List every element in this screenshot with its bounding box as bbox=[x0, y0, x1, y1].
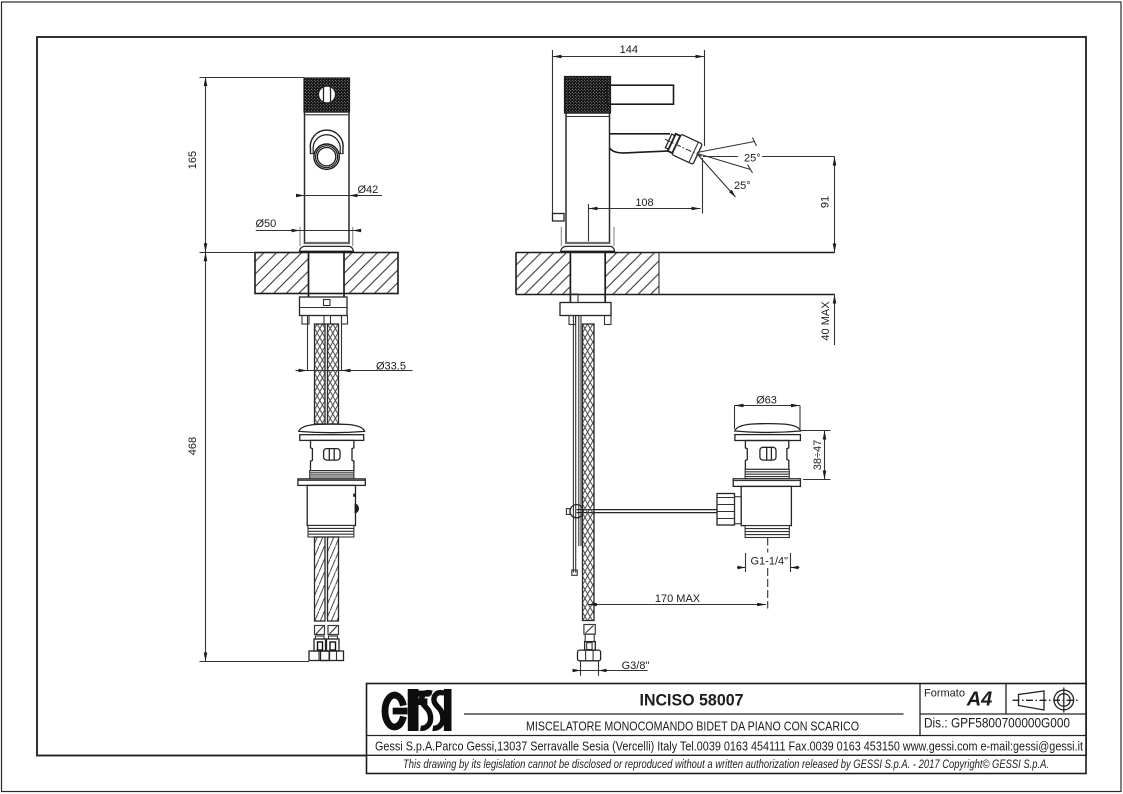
svg-text:Ø50: Ø50 bbox=[256, 218, 277, 230]
svg-text:144: 144 bbox=[620, 44, 638, 56]
svg-text:INCISO 58007: INCISO 58007 bbox=[640, 692, 744, 710]
svg-text:25°: 25° bbox=[734, 180, 751, 192]
svg-text:Dis.: GPF5800700000G000: Dis.: GPF5800700000G000 bbox=[924, 715, 1070, 731]
svg-text:This drawing by its legislatio: This drawing by its legislation cannot b… bbox=[403, 759, 1049, 771]
svg-text:Ø63: Ø63 bbox=[756, 395, 777, 407]
svg-text:25°: 25° bbox=[744, 153, 761, 165]
svg-text:Gessi S.p.A.Parco Gessi,13037: Gessi S.p.A.Parco Gessi,13037 Serravalle… bbox=[375, 739, 1083, 754]
svg-text:A4: A4 bbox=[966, 689, 993, 711]
svg-text:38÷47: 38÷47 bbox=[812, 440, 824, 471]
svg-text:Ø33.5: Ø33.5 bbox=[376, 361, 406, 373]
svg-text:170 MAX: 170 MAX bbox=[655, 593, 701, 605]
svg-text:108: 108 bbox=[635, 197, 653, 209]
svg-text:Formato: Formato bbox=[924, 688, 965, 700]
svg-text:G1-1/4": G1-1/4" bbox=[751, 556, 789, 568]
svg-text:91: 91 bbox=[820, 196, 832, 208]
svg-text:Ø42: Ø42 bbox=[358, 184, 379, 196]
svg-text:165: 165 bbox=[187, 151, 199, 169]
svg-text:40 MAX: 40 MAX bbox=[820, 301, 832, 341]
svg-text:468: 468 bbox=[187, 437, 199, 455]
svg-text:G3/8": G3/8" bbox=[622, 660, 650, 672]
svg-text:MISCELATORE MONOCOMANDO BIDET: MISCELATORE MONOCOMANDO BIDET DA PIANO C… bbox=[526, 719, 859, 734]
